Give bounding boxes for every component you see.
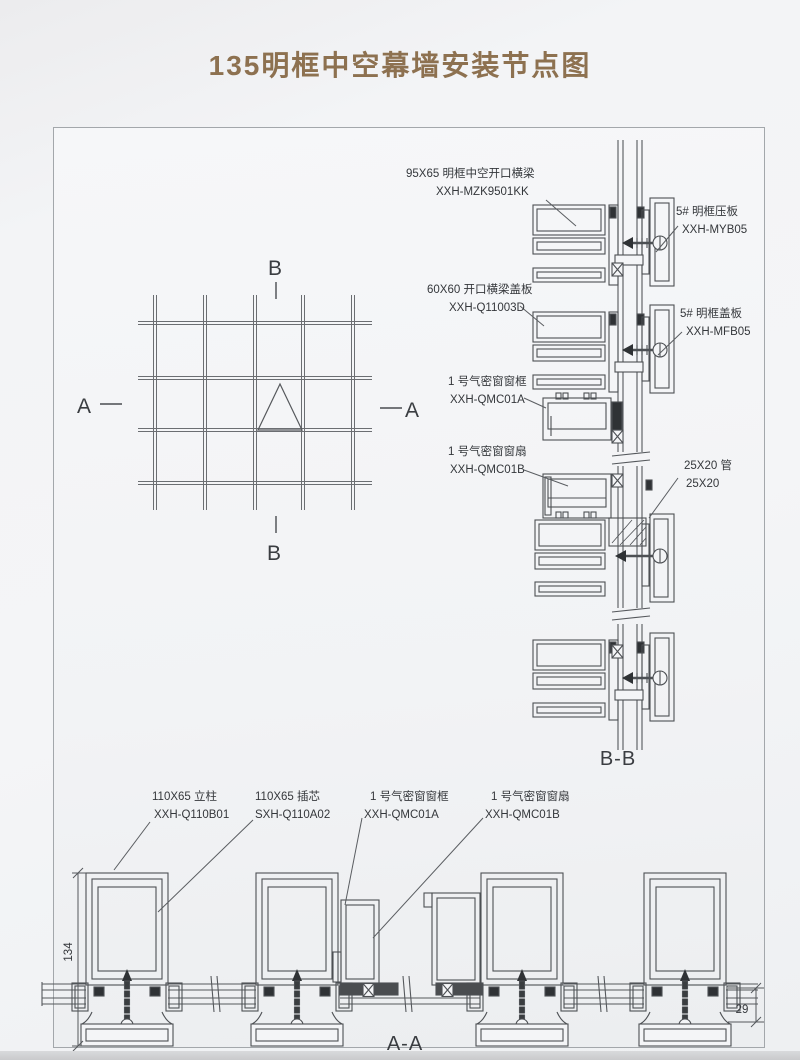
callout-mullion: 110X65 立柱 XXH-Q110B01 — [152, 789, 229, 825]
window-sash-profile-bb — [543, 474, 652, 518]
callout-window-frame-aa: 1 号气密窗窗框 XXH-QMC01A — [364, 789, 449, 825]
callout-line2: XXH-MZK9501KK — [436, 184, 534, 202]
dim-134-value: 134 — [63, 942, 75, 962]
mullion-1 — [72, 873, 182, 1046]
tube-25x20-unit — [535, 514, 674, 602]
callout-line2: XXH-QMC01A — [364, 807, 449, 825]
plan-grid — [138, 295, 372, 510]
callout-line1: 110X65 插芯 — [255, 789, 330, 807]
callout-line1: 1 号气密窗窗扇 — [448, 444, 527, 462]
callout-line1: 5# 明框盖板 — [680, 306, 751, 324]
window-assembly-aa — [333, 893, 482, 997]
marker-a-right: A — [405, 399, 419, 422]
marker-b-bottom: B — [267, 542, 281, 565]
callout-insert-core: 110X65 插芯 SXH-Q110A02 — [255, 789, 330, 825]
callout-line2: XXH-QMC01B — [450, 462, 527, 480]
marker-b-top: B — [268, 257, 282, 280]
callout-line2: SXH-Q110A02 — [255, 807, 330, 825]
callout-window-sash-bb: 1 号气密窗窗扇 XXH-QMC01B — [448, 444, 527, 480]
callout-frame-cover: 5# 明框盖板 XXH-MFB05 — [680, 306, 751, 342]
section-aa-drawing: 134 29 — [42, 868, 764, 1051]
document-page: 135明框中空幕墙安装节点图 — [0, 0, 800, 1060]
callout-line1: 1 号气密窗窗扇 — [491, 789, 570, 807]
callout-line1: 1 号气密窗窗框 — [448, 374, 527, 392]
callout-line2: XXH-QMC01A — [450, 392, 527, 410]
callout-line2: XXH-MYB05 — [682, 222, 747, 240]
marker-a-left: A — [77, 395, 91, 418]
dim-29-value: 29 — [736, 1004, 749, 1016]
callout-line1: 1 号气密窗窗框 — [370, 789, 449, 807]
callout-line1: 110X65 立柱 — [152, 789, 229, 807]
plan-section-markers: A A B B — [77, 257, 419, 565]
transom-unit-top — [533, 198, 674, 286]
callout-line1: 5# 明框压板 — [676, 204, 747, 222]
callout-line2: XXH-QMC01B — [485, 807, 570, 825]
window-frame-profile-bb — [543, 393, 622, 440]
mullion-4 — [630, 873, 740, 1046]
callout-pressure-plate: 5# 明框压板 XXH-MYB05 — [676, 204, 747, 240]
photo-page-edge — [0, 1051, 800, 1060]
opening-triangle-symbol — [258, 384, 302, 430]
callout-line1: 95X65 明框中空开口横梁 — [406, 166, 534, 184]
glass-horizontal — [42, 976, 758, 1012]
callout-window-frame-bb: 1 号气密窗窗框 XXH-QMC01A — [448, 374, 527, 410]
node-diagram-linework: A A B B — [0, 0, 800, 1060]
transom-unit-bottom — [533, 633, 674, 721]
callout-line2: XXH-Q110B01 — [154, 807, 229, 825]
callout-line2: XXH-MFB05 — [686, 324, 751, 342]
callout-transom-beam: 95X65 明框中空开口横梁 XXH-MZK9501KK — [406, 166, 534, 202]
callout-25x20-tube: 25X20 管 25X20 — [684, 458, 732, 494]
mullion-3 — [467, 873, 577, 1046]
transom-unit-2 — [533, 305, 674, 393]
callout-line1: 25X20 管 — [684, 458, 732, 476]
callout-beam-cover: 60X60 开口横梁盖板 XXH-Q11003D — [427, 282, 532, 318]
section-bb-caption: B-B — [600, 748, 636, 770]
callout-line2: XXH-Q11003D — [449, 300, 532, 318]
callout-window-sash-aa: 1 号气密窗窗扇 XXH-QMC01B — [485, 789, 570, 825]
mullion-2 — [242, 873, 352, 1046]
callout-line2: 25X20 — [686, 476, 732, 494]
section-bb-drawing — [533, 140, 674, 750]
callout-line1: 60X60 开口横梁盖板 — [427, 282, 532, 300]
